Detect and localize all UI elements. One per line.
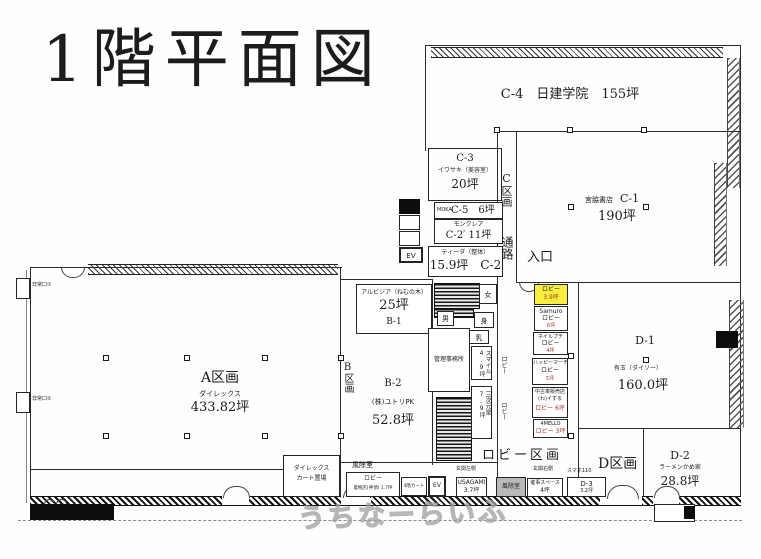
column-marker bbox=[494, 127, 500, 133]
hatched-wall bbox=[431, 47, 723, 58]
room-d3-code: D-3 bbox=[568, 480, 605, 488]
lobby-unit-4-tenant: ハッピーマーチ bbox=[533, 361, 567, 367]
room-c2-tenant: ティーダ（整体） bbox=[429, 250, 502, 257]
room-sanjigen-label: 三次元堂 7.9坪 bbox=[478, 391, 490, 438]
wc-accessible-label: 身 bbox=[475, 317, 493, 325]
zigzag-wall bbox=[714, 163, 727, 266]
wall-line bbox=[425, 45, 426, 151]
lobby-unit-6-mid: ロビー 3坪 bbox=[534, 429, 567, 436]
room-a-area: 433.82坪 bbox=[175, 401, 265, 416]
elevator-2-label: EV bbox=[430, 483, 444, 490]
room-c2-label: 15.9坪 C-2 bbox=[429, 259, 502, 273]
column-marker bbox=[641, 127, 647, 133]
room-c5-label: C-5 6坪 bbox=[451, 205, 495, 217]
wc-men-label: 男 bbox=[438, 315, 453, 323]
cart-storage-line2: カート置場 bbox=[284, 476, 339, 483]
lobby-unit-5-sub: (わ)イずる bbox=[533, 397, 567, 403]
c-section-label: C区画 bbox=[501, 172, 512, 207]
lobby-unit-1-tenant: ロビー bbox=[535, 287, 567, 294]
room-d3-area: 3.2坪 bbox=[568, 489, 605, 495]
room-c3-code: C-3 bbox=[429, 153, 501, 165]
lobby-unit-2-mid: ロビー bbox=[535, 316, 567, 323]
windbreak-room-2: 風除室 bbox=[496, 477, 526, 497]
room-b2-tenant: (株)ユトリPK bbox=[356, 398, 430, 406]
room-b1-code: B-1 bbox=[357, 317, 431, 327]
wall-line bbox=[740, 45, 741, 505]
column-marker bbox=[184, 355, 190, 361]
lobby-vertical-label: ロビー bbox=[500, 402, 506, 420]
lobby-unit-1-highlighted: ロビー 3.9坪 bbox=[534, 284, 568, 305]
column-marker bbox=[103, 433, 109, 439]
lobby-unit-5-tenant: 中古車販売店 bbox=[533, 390, 567, 396]
room-c3-tenant: イワサキ（美容室） bbox=[429, 168, 501, 175]
lobby-unit-4-area: 5坪 bbox=[533, 377, 567, 383]
column-marker bbox=[184, 433, 190, 439]
escalator-lower bbox=[436, 397, 472, 461]
zigzag-wall bbox=[729, 300, 744, 428]
room-c1-area: 190坪 bbox=[598, 210, 636, 225]
room-c2-prime: モンクレア C-2′ 11坪 bbox=[434, 219, 503, 244]
column-marker bbox=[643, 204, 649, 210]
wc-women-label: 女 bbox=[480, 291, 496, 299]
lobby-unit-4-mid: ロビー bbox=[533, 368, 567, 375]
room-usagami-area: 3.7坪 bbox=[457, 488, 486, 495]
wc-women: 女 bbox=[479, 284, 497, 304]
entrance-left-label: 玄関左側 bbox=[456, 467, 476, 473]
entrance-label: 入口 bbox=[527, 251, 553, 266]
exit2-label: 非常口② bbox=[32, 397, 51, 403]
lobby-unit-2-area: 6坪 bbox=[535, 324, 567, 330]
column-marker bbox=[262, 433, 268, 439]
column-marker bbox=[262, 355, 268, 361]
room-sanjigen: 三次元堂 7.9坪 bbox=[471, 386, 492, 439]
room-b2-area: 52.8坪 bbox=[356, 414, 430, 429]
lobby-unit-5: 中古車販売店 (わ)イずる ロビー 6坪 bbox=[532, 387, 568, 418]
room-c2p-tenant: モンクレア bbox=[435, 222, 502, 229]
room-c3: C-3 イワサキ（美容室） 20坪 bbox=[428, 148, 502, 201]
wall-line bbox=[516, 282, 741, 283]
room-smile-label: スマイル 4.9坪 bbox=[478, 350, 490, 379]
corridor-label: 通路 bbox=[501, 236, 513, 260]
wc-men: 男 bbox=[437, 311, 454, 326]
elevator-label: EV bbox=[401, 252, 421, 260]
exterior-stair-block bbox=[30, 504, 114, 520]
windbreak-room-2-label: 風除室 bbox=[497, 484, 525, 491]
lobby-unit-2: Samuro ロビー 6坪 bbox=[534, 306, 568, 331]
exit-box bbox=[16, 278, 30, 299]
lobby-section-label: ロビー区画 bbox=[482, 449, 562, 464]
lobby-unit-1-area: 3.9坪 bbox=[535, 295, 567, 302]
room-saiji-area: 4坪 bbox=[528, 488, 562, 495]
wall-line bbox=[425, 45, 741, 46]
room-c1-code: C-1 bbox=[620, 192, 639, 205]
elevator: EV bbox=[399, 247, 423, 263]
room-d2-tenant: ラーメンかめ家 bbox=[652, 465, 708, 472]
column-marker bbox=[567, 127, 573, 133]
lobby-unit-3-mid: ロビー bbox=[534, 341, 567, 348]
cart-4f-label: 4階カート bbox=[402, 484, 426, 489]
column-marker bbox=[568, 353, 574, 359]
room-smile: スマイル 4.9坪 bbox=[471, 346, 492, 380]
nursing-room: 乳 bbox=[469, 330, 489, 344]
room-c2: ティーダ（整体） 15.9坪 C-2 bbox=[428, 246, 503, 277]
stair-block bbox=[716, 331, 738, 348]
room-b1-area: 25坪 bbox=[357, 299, 431, 314]
cart-4f-box: 4階カート bbox=[401, 477, 427, 496]
room-c1-tenant: 宮脇書店 C-1 bbox=[585, 193, 639, 206]
room-usagami: USAGAMI 3.7坪 bbox=[456, 477, 487, 497]
wall-line bbox=[340, 279, 432, 280]
management-office: 管理事務所 bbox=[428, 328, 470, 392]
room-d1-code: D-1 bbox=[620, 335, 670, 348]
hatched-wall bbox=[88, 264, 338, 275]
room-c5: MOKA C-5 6坪 bbox=[434, 202, 503, 219]
room-c4-label: C-4 日建学院 155坪 bbox=[440, 88, 700, 103]
exterior-block bbox=[684, 506, 695, 519]
wall-line bbox=[643, 428, 644, 498]
lobby-unit-5-mid: ロビー 6坪 bbox=[533, 406, 567, 413]
lobby-vertical-label: ロビー bbox=[500, 356, 506, 374]
wall-line bbox=[578, 428, 740, 429]
service-box bbox=[399, 215, 420, 230]
lobby-unit-4: ハッピーマーチ ロビー 5坪 bbox=[532, 358, 568, 385]
d-section-label: D区画 bbox=[598, 456, 637, 472]
column-marker bbox=[338, 433, 344, 439]
watermark: うちなーらいふ bbox=[298, 496, 509, 534]
floor-plan: 1階平面図 C-4 日建学院 155坪 C-3 イワサキ（美容室） 20坪 M bbox=[0, 0, 761, 559]
column-marker bbox=[643, 357, 649, 363]
room-saiji: 催事スペース 4坪 bbox=[527, 478, 563, 497]
escalator-upper bbox=[434, 283, 480, 309]
lobby-kiosk: ロビー 着物店(神領) 1.7坪 bbox=[346, 472, 400, 497]
room-d1-tenant: 有玉（ダイソー） bbox=[608, 366, 668, 373]
nursing-room-label: 乳 bbox=[470, 334, 488, 342]
cart-storage-line1: ダイレックス bbox=[284, 466, 339, 473]
door-swing bbox=[61, 267, 85, 278]
smaho-label: スマホ110 bbox=[567, 469, 591, 475]
zigzag-wall bbox=[727, 58, 740, 188]
management-office-label: 管理事務所 bbox=[429, 357, 469, 364]
wc-accessible: 身 bbox=[474, 312, 494, 328]
elevator-2: EV bbox=[428, 476, 446, 497]
cart-storage: ダイレックス カート置場 bbox=[283, 455, 340, 497]
room-saiji-tenant: 催事スペース bbox=[528, 481, 562, 487]
room-c2p-label: C-2′ 11坪 bbox=[435, 230, 502, 242]
room-c3-area: 20坪 bbox=[429, 178, 501, 192]
column-marker bbox=[338, 355, 344, 361]
door-swing bbox=[223, 486, 250, 498]
lobby-unit-3-area: 4坪 bbox=[534, 349, 567, 355]
room-b2-code: B-2 bbox=[356, 378, 430, 390]
lobby-unit-3: ネイルプチ ロビー 4坪 bbox=[533, 332, 568, 355]
exit1-label: 非常口① bbox=[32, 283, 51, 289]
lobby-kiosk-sub: 着物店(神領) 1.7坪 bbox=[347, 486, 399, 491]
windbreak-room-label: 風除室 bbox=[352, 461, 373, 469]
wall-line bbox=[30, 469, 284, 470]
column-marker bbox=[568, 433, 574, 439]
room-d2-code: D-2 bbox=[658, 450, 702, 463]
exit-box bbox=[16, 392, 30, 413]
room-b1: アルビジア（ねむの木） 25坪 B-1 bbox=[356, 284, 432, 334]
wall-line bbox=[26, 270, 27, 503]
lobby-kiosk-label: ロビー bbox=[347, 476, 399, 483]
b-section-label: B区画 bbox=[342, 362, 352, 393]
door-swing bbox=[607, 485, 639, 499]
wall-line bbox=[516, 131, 517, 282]
room-a-tenant: ダイレックス bbox=[175, 390, 265, 398]
lobby-unit-6: 4MELLO ロビー 3坪 bbox=[533, 419, 568, 438]
service-block bbox=[399, 199, 420, 214]
room-a-code: A区画 bbox=[175, 370, 265, 386]
room-d3: D-3 3.2坪 bbox=[567, 477, 606, 497]
wall-line bbox=[578, 283, 579, 497]
lobby-unit-6-tenant: 4MELLO bbox=[534, 422, 567, 428]
room-d2-area: 28.8坪 bbox=[652, 475, 708, 489]
room-b2: B-2 (株)ユトリPK 52.8坪 bbox=[356, 336, 432, 462]
entrance-right-label: 玄関右側 bbox=[533, 467, 553, 473]
room-usagami-tenant: USAGAMI bbox=[457, 480, 486, 487]
room-d1-area: 160.0坪 bbox=[608, 379, 678, 394]
room-b1-tenant: アルビジア（ねむの木） bbox=[357, 290, 431, 297]
page-title: 1階平面図 bbox=[42, 24, 384, 98]
room-c5-brand: MOKA bbox=[437, 208, 452, 214]
wall-line bbox=[497, 131, 741, 132]
column-marker bbox=[103, 355, 109, 361]
service-box bbox=[399, 231, 420, 246]
column-marker bbox=[568, 204, 574, 210]
